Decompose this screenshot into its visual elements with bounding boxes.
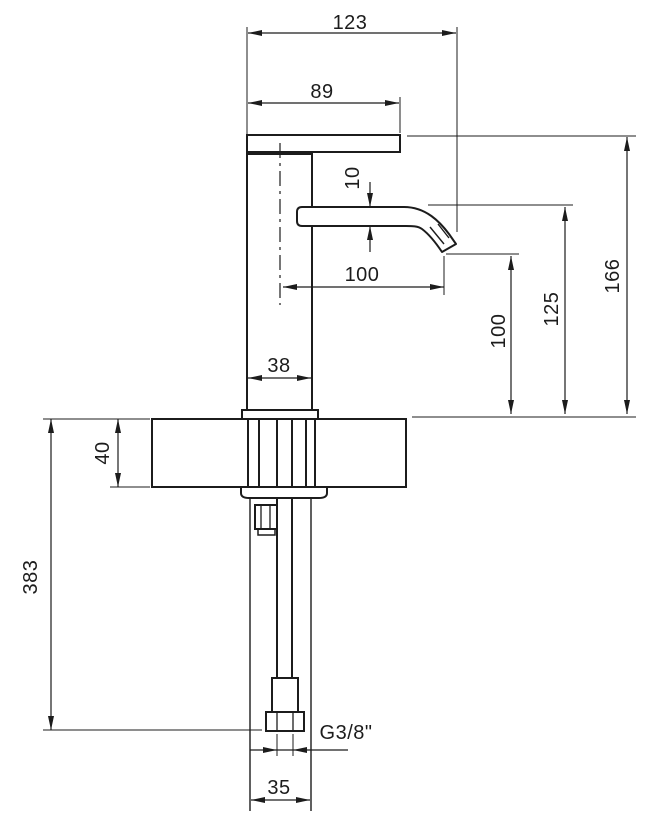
arrowhead [115,419,121,433]
connector-nut [266,712,304,731]
arrowhead [508,400,514,414]
dim-label-supply-length: 383 [21,560,41,595]
threaded-shank-lines [248,420,315,486]
dim-label-deck-thickness: 40 [93,441,113,464]
lever-handle-plate [247,135,400,152]
arrowhead [367,226,373,240]
fixing-nut [255,505,277,535]
dim-label-thread-size: G3/8" [320,723,373,743]
arrowhead [385,100,399,106]
arrowhead [562,207,568,221]
arrowhead [624,137,630,151]
arrowhead [442,30,456,36]
arrowhead [251,797,265,803]
arrowhead [248,30,262,36]
dim-label-tip-clearance: 100 [489,314,509,349]
arrowhead [562,400,568,414]
arrowhead [430,284,444,290]
hose-collar [272,678,298,712]
faucet-outline [152,135,456,811]
arrowhead [296,797,310,803]
connector-nut-body [266,712,304,731]
dim-label-spout-reach: 100 [345,265,380,285]
arrowhead [48,419,54,433]
dim-label-spout-height: 10 [343,166,363,189]
arrowhead [263,747,277,753]
arrowhead [283,284,297,290]
arrowhead [115,473,121,487]
under-deck-washer [241,487,327,498]
dim-label-outlet-height: 125 [542,292,562,327]
dim-label-handle-length: 89 [310,82,333,102]
dim-label-total-height: 166 [603,259,623,294]
arrowhead [48,716,54,730]
arrowhead [248,100,262,106]
technical-drawing-sheet: 123 89 10 100 100 125 166 38 40 383 G3/8… [0,0,670,815]
arrowhead [248,375,262,381]
arrowhead [624,400,630,414]
arrowhead [297,375,311,381]
extension-lines [43,27,636,756]
fixing-nut-body [255,505,277,529]
arrowhead [508,256,514,270]
base-flange [242,410,318,419]
countertop-deck [152,419,406,487]
dim-label-body-width: 38 [267,356,290,376]
arrowhead [367,193,373,207]
drawing-linework [0,0,670,815]
dim-label-overall-width: 123 [333,13,368,33]
dim-label-lower-width: 35 [267,778,290,798]
arrowhead [293,747,307,753]
